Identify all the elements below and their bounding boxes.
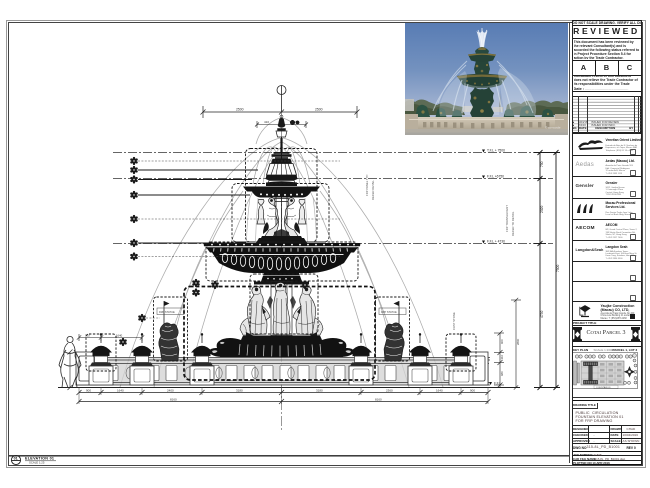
svg-text:1640: 1640: [117, 389, 124, 393]
svg-text:4730: 4730: [540, 310, 544, 318]
svg-text:2400: 2400: [167, 389, 174, 393]
svg-text:410: 410: [264, 120, 269, 124]
svg-text:F.F.L + 4730: F.F.L + 4730: [487, 240, 505, 244]
svg-text:REFER DETAIL: REFER DETAIL: [371, 180, 375, 200]
svg-text:3180: 3180: [316, 389, 323, 393]
svg-text:CAST STONE: CAST STONE: [452, 312, 456, 330]
svg-text:FRP STATUE: FRP STATUE: [159, 310, 175, 314]
svg-text:2500: 2500: [236, 108, 244, 112]
svg-text:1640: 1640: [116, 334, 123, 338]
svg-text:FRP PANEL TYP.: FRP PANEL TYP.: [365, 174, 369, 196]
svg-text:600: 600: [500, 339, 504, 344]
svg-text:SCALE 1:25: SCALE 1:25: [29, 461, 45, 465]
svg-text:FRP STATUE: FRP STATUE: [381, 310, 397, 314]
svg-text:© concorde: © concorde: [545, 126, 561, 130]
svg-text:8160: 8160: [170, 398, 177, 402]
svg-text:8160: 8160: [375, 398, 382, 402]
svg-text:01: 01: [14, 456, 18, 460]
svg-text:750: 750: [540, 161, 544, 167]
svg-text:1640: 1640: [436, 389, 443, 393]
svg-text:2800: 2800: [516, 338, 520, 345]
svg-text:310: 310: [500, 354, 504, 359]
svg-text:2360: 2360: [386, 389, 393, 393]
svg-text:FOUNTAIN 01: FOUNTAIN 01: [596, 385, 611, 388]
svg-text:2020: 2020: [540, 205, 544, 213]
svg-text:FRP TRANSLUCENT: FRP TRANSLUCENT: [505, 205, 509, 232]
svg-text:900: 900: [86, 389, 91, 393]
svg-text:3180: 3180: [236, 389, 243, 393]
svg-text:900: 900: [470, 389, 475, 393]
svg-text:7500: 7500: [556, 264, 560, 272]
svg-text:REFER TO DETAIL: REFER TO DETAIL: [511, 211, 515, 236]
svg-text:T.F.L + 7500: T.F.L + 7500: [487, 149, 505, 153]
svg-text:F.F.L +6750: F.F.L +6750: [487, 175, 504, 179]
svg-text:680: 680: [500, 371, 504, 376]
svg-text:2500: 2500: [315, 108, 323, 112]
svg-text:900: 900: [85, 334, 90, 338]
